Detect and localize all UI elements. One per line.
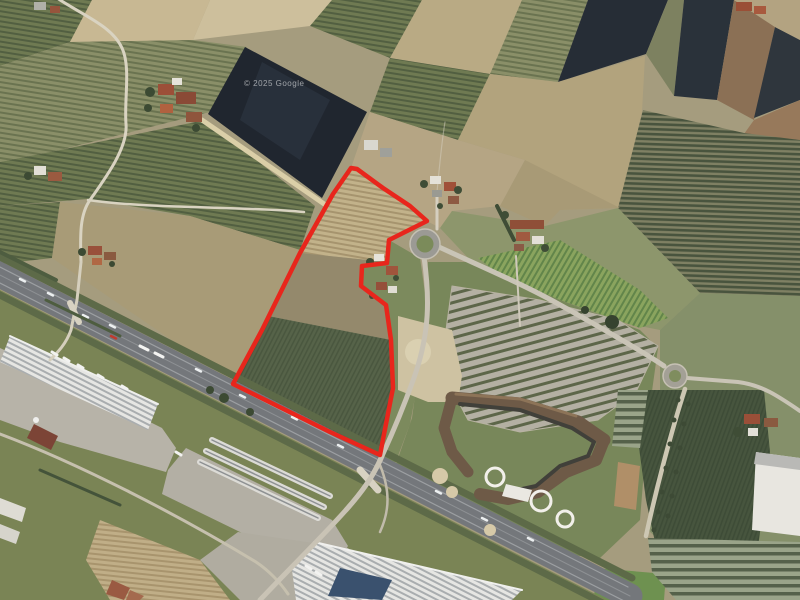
avenue-tree	[682, 422, 687, 427]
farm5-house	[748, 428, 758, 436]
avenue-tree	[676, 398, 681, 403]
farm4-barn-2	[516, 232, 530, 241]
sand-patch-3	[484, 524, 496, 536]
tree	[192, 124, 200, 132]
field-tl-strip	[70, 0, 210, 42]
farm5-barn	[744, 414, 760, 424]
avenue-tree	[674, 470, 679, 475]
farm2-barn	[48, 172, 62, 181]
farm3-barn-3	[92, 258, 102, 265]
farm4-long-barn	[510, 220, 544, 229]
tree	[246, 408, 254, 416]
avenue-tree	[670, 494, 675, 499]
tree	[219, 393, 229, 403]
tree	[393, 275, 399, 281]
farm-topright-1	[736, 2, 752, 11]
aerial-imagery	[0, 0, 800, 600]
farm1-barn-1	[158, 84, 174, 95]
tree	[437, 203, 443, 209]
tree	[109, 261, 115, 267]
avenue-tree	[668, 442, 673, 447]
stable-building	[614, 462, 640, 510]
tree	[733, 427, 743, 437]
satellite-map-view: © 2025 Google	[0, 0, 800, 600]
farm1-barn-4	[186, 112, 202, 122]
farm1-barn-2	[176, 92, 196, 104]
house-ne-1	[430, 176, 441, 184]
tree	[581, 306, 589, 314]
farm1-house	[172, 78, 182, 85]
tree	[454, 186, 462, 194]
farm1-barn-3	[160, 104, 173, 113]
farm4-house	[532, 236, 544, 244]
farm-topright-2	[754, 6, 766, 14]
avenue-tree	[686, 402, 691, 407]
avenue-tree	[664, 466, 669, 471]
roundabout-island	[417, 236, 434, 253]
tree	[144, 104, 152, 112]
tree-big-road	[605, 315, 619, 329]
building-apex-north-1	[364, 140, 378, 150]
sand-patch-2	[446, 486, 458, 498]
parking-south-trees	[648, 538, 800, 600]
tree	[206, 386, 214, 394]
tree	[541, 244, 549, 252]
farm3-barn-1	[88, 246, 102, 255]
avenue-tree	[678, 446, 683, 451]
tree	[78, 248, 86, 256]
tree	[420, 180, 428, 188]
tree	[24, 172, 32, 180]
house-ne-3	[432, 190, 442, 197]
tree	[501, 211, 509, 219]
farm2-house	[34, 166, 46, 175]
building-apex-north-2	[380, 148, 392, 157]
building-topleft-2	[50, 6, 60, 13]
house-ne-4	[448, 196, 459, 204]
farm4-barn-3	[514, 244, 524, 251]
avenue-tree	[672, 418, 677, 423]
roundabout2-island	[669, 370, 681, 382]
avenue-tree	[656, 510, 661, 515]
silo-tower	[33, 417, 39, 423]
tree	[145, 87, 155, 97]
house-notch-1	[374, 254, 384, 261]
avenue-tree	[666, 514, 671, 519]
house-notch-3	[376, 282, 387, 290]
farm5-barn-2	[764, 418, 778, 427]
building-topleft-1	[34, 2, 46, 10]
house-notch-4	[388, 286, 397, 293]
avenue-tree	[652, 528, 657, 533]
avenue-tree	[660, 490, 665, 495]
house-notch-2	[386, 266, 398, 275]
farm3-barn-2	[104, 252, 116, 260]
sand-patch-1	[432, 468, 448, 484]
